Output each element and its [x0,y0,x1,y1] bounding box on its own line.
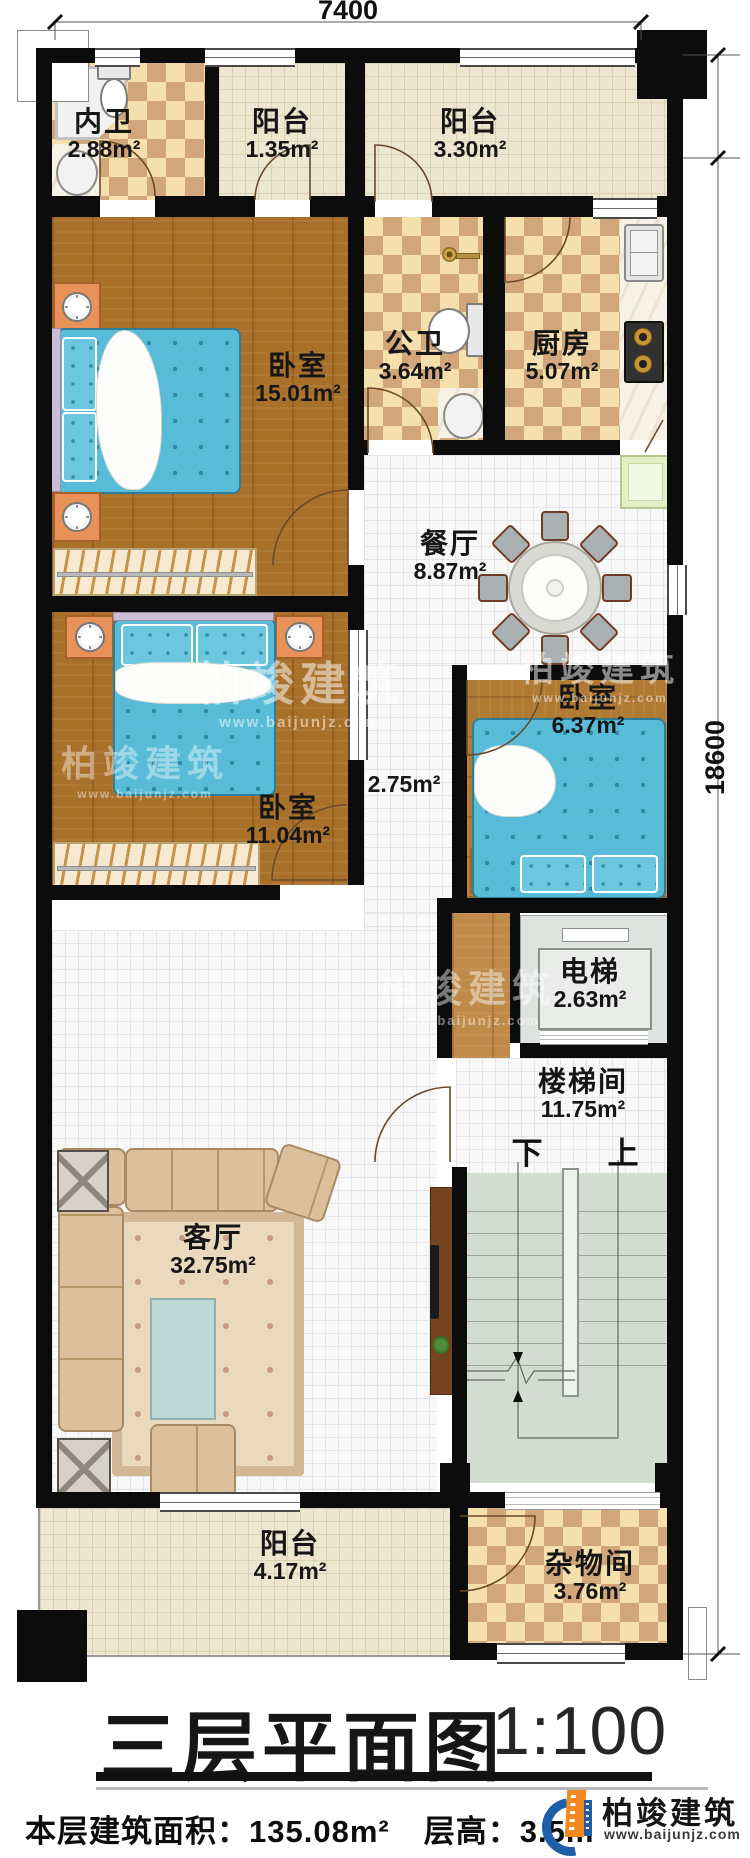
room-area: 2.63m² [554,987,627,1013]
room-name: 阳台 [434,106,507,137]
room-name: 楼梯间 [538,1066,628,1097]
stair-break-line [467,1357,575,1383]
dimension-ticks [48,15,725,1661]
room-area: 1.35m² [246,137,319,163]
floor-height-label: 层高： [424,1814,520,1849]
room-name: 阳台 [246,106,319,137]
room-area: 8.87m² [414,559,487,585]
door-leaf [645,420,663,452]
room-name: 阳台 [254,1528,327,1559]
room-label-balcony-bottom: 阳台 4.17m² [254,1528,327,1585]
room-area: 32.75m² [170,1253,256,1279]
room-label-corridor: 2.75m² [368,772,441,798]
floor-plan-page: 7400 18600 内卫 2.88m² 阳台 1.35m² 阳台 3.30m²… [0,0,750,1858]
door-arc [460,1516,535,1591]
dimension-right-value: 18600 [700,720,731,795]
room-area: 4.17m² [254,1559,327,1585]
room-name: 卧室 [246,792,330,823]
logo-building-icon [584,1800,592,1836]
room-name: 卧室 [552,682,625,713]
room-name: 厨房 [526,328,599,359]
stair-arrow-icon [513,1390,523,1402]
door-arc [273,490,348,565]
stair-arrow-icon [513,1352,523,1364]
dimension-lines [48,15,740,1661]
room-area: 15.01m² [255,381,341,407]
room-label-balcony-top-right: 阳台 3.30m² [434,106,507,163]
stairs-up-label: 上 [608,1128,639,1173]
room-area: 3.30m² [434,137,507,163]
room-label-kitchen: 厨房 5.07m² [526,328,599,385]
room-area: 11.04m² [246,823,330,849]
brand-website: www.baijunjz.com [604,1826,741,1842]
brand-logo: 柏竣建筑 www.baijunjz.com [540,1788,740,1850]
door-arc [368,388,433,453]
room-area: 6.37m² [552,713,625,739]
room-label-dining: 餐厅 8.87m² [414,528,487,585]
stair-walkline [518,1160,618,1438]
room-area: 3.64m² [379,359,452,385]
floor-area-value: 135.08m² [249,1814,390,1849]
dimension-top-value: 7400 [318,0,378,26]
room-name: 内卫 [68,106,141,137]
door-arc [467,680,542,755]
stairs-down-label: 下 [512,1128,543,1173]
room-area: 11.75m² [538,1097,628,1123]
door-arc [505,217,570,282]
room-label-stairwell: 楼梯间 11.75m² [538,1066,628,1123]
room-name: 公卫 [379,328,452,359]
plan-annotations [0,0,750,1858]
room-label-elevator: 电梯 2.63m² [554,956,627,1013]
title-underline [96,1772,652,1781]
room-label-bedroom-right: 卧室 6.37m² [552,682,625,739]
room-name: 客厅 [170,1222,256,1253]
stair-annotations [467,1160,618,1438]
room-name: 杂物间 [545,1548,635,1579]
room-label-public-bath: 公卫 3.64m² [379,328,452,385]
floor-stats: 本层建筑面积：135.08m²层高：3.5m [25,1806,594,1851]
room-name: 卧室 [255,350,341,381]
room-area: 3.76m² [545,1579,635,1605]
door-arc [375,1087,450,1162]
extension-line [683,55,740,1654]
room-label-ensuite-bath: 内卫 2.88m² [68,106,141,163]
room-area: 2.88m² [68,137,141,163]
room-label-living: 客厅 32.75m² [170,1222,256,1279]
logo-building-icon [565,1790,586,1837]
room-label-balcony-top-left: 阳台 1.35m² [246,106,319,163]
room-name: 电梯 [554,956,627,987]
room-label-bedroom-master: 卧室 15.01m² [255,350,341,407]
room-name: 餐厅 [414,528,487,559]
room-area: 5.07m² [526,359,599,385]
room-label-bedroom-left: 卧室 11.04m² [246,792,330,849]
floor-area-label: 本层建筑面积： [25,1814,249,1849]
door-arc [375,145,432,202]
room-label-storage: 杂物间 3.76m² [545,1548,635,1605]
drawing-scale: 1:100 [492,1692,667,1770]
room-area: 2.75m² [368,772,441,798]
